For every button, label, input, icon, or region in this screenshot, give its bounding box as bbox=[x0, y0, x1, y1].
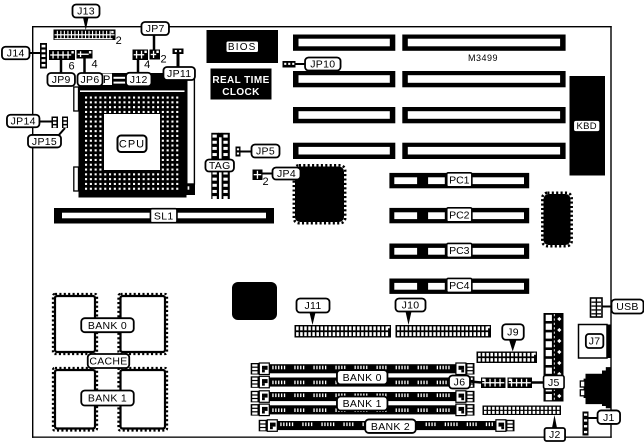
svg-text:JP14: JP14 bbox=[11, 116, 36, 128]
svg-text:J1: J1 bbox=[603, 412, 615, 424]
svg-text:BANK 1: BANK 1 bbox=[343, 398, 382, 410]
svg-text:4: 4 bbox=[91, 59, 97, 71]
svg-text:REAL TIME: REAL TIME bbox=[212, 75, 269, 86]
svg-text:PC1: PC1 bbox=[449, 174, 470, 186]
svg-text:J6: J6 bbox=[454, 377, 466, 389]
svg-text:PC3: PC3 bbox=[449, 245, 470, 257]
svg-text:6: 6 bbox=[68, 61, 74, 73]
svg-text:BIOS: BIOS bbox=[228, 42, 257, 53]
svg-text:J11: J11 bbox=[304, 300, 321, 312]
svg-text:J9: J9 bbox=[507, 327, 519, 339]
svg-text:SL1: SL1 bbox=[154, 210, 174, 222]
svg-text:J10: J10 bbox=[402, 300, 420, 312]
svg-text:JP5: JP5 bbox=[256, 146, 275, 158]
svg-text:BANK 0: BANK 0 bbox=[88, 320, 127, 332]
svg-text:J14: J14 bbox=[7, 48, 25, 60]
svg-text:BANK 0: BANK 0 bbox=[343, 372, 382, 384]
svg-text:J7: J7 bbox=[589, 336, 601, 348]
svg-text:M3499: M3499 bbox=[468, 53, 498, 63]
svg-text:BANK 1: BANK 1 bbox=[88, 393, 127, 405]
svg-text:2: 2 bbox=[262, 176, 268, 188]
svg-text:J13: J13 bbox=[77, 6, 95, 18]
svg-text:JP11: JP11 bbox=[167, 68, 191, 80]
svg-text:J5: J5 bbox=[548, 377, 560, 389]
svg-text:CLOCK: CLOCK bbox=[222, 87, 260, 98]
svg-text:4: 4 bbox=[144, 59, 150, 71]
svg-text:2: 2 bbox=[160, 54, 166, 66]
svg-text:JP15: JP15 bbox=[32, 136, 57, 148]
svg-text:CACHE: CACHE bbox=[89, 356, 127, 368]
svg-text:J2: J2 bbox=[549, 429, 561, 441]
svg-text:PC4: PC4 bbox=[449, 280, 470, 292]
svg-text:J12: J12 bbox=[130, 74, 148, 86]
svg-text:CPU: CPU bbox=[119, 139, 145, 151]
svg-text:JP7: JP7 bbox=[146, 23, 165, 35]
svg-text:2: 2 bbox=[116, 35, 122, 47]
svg-text:USB: USB bbox=[616, 301, 639, 313]
svg-text:JP6: JP6 bbox=[81, 74, 100, 86]
svg-text:JP4: JP4 bbox=[277, 168, 296, 180]
svg-text:TAG: TAG bbox=[209, 160, 231, 172]
svg-text:P: P bbox=[103, 74, 110, 86]
svg-text:JP9: JP9 bbox=[52, 74, 71, 86]
svg-text:JP10: JP10 bbox=[310, 59, 335, 71]
svg-text:BANK 2: BANK 2 bbox=[371, 421, 410, 433]
svg-text:KBD: KBD bbox=[576, 121, 596, 132]
svg-text:PC2: PC2 bbox=[449, 209, 470, 221]
